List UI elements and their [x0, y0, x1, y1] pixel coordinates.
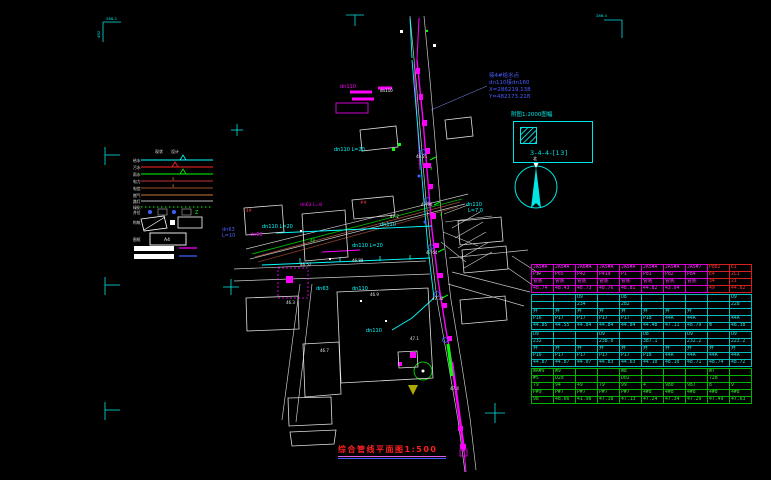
table-cell: 井: [730, 346, 752, 353]
water-main: [417, 18, 419, 60]
building: [288, 397, 332, 426]
table-cell: #5: [532, 376, 554, 383]
table-cell: 井: [620, 309, 642, 316]
table-cell: [708, 316, 730, 323]
detail-box-label: 3-4-4-[13]: [530, 149, 568, 157]
elev-label: 46.52: [300, 262, 312, 267]
table-cell: 4: [642, 383, 664, 390]
frame-label: 286.2: [106, 16, 117, 21]
table-cell: 44A: [686, 316, 708, 323]
table-cell: 井: [620, 346, 642, 353]
road-edge: [246, 194, 468, 249]
table-cell: JA5#A: [642, 265, 664, 272]
table-cell: JA5#7: [686, 265, 708, 272]
table-cell: 井: [598, 346, 620, 353]
fitting: [419, 94, 423, 100]
table-cell: 管底: [554, 279, 576, 286]
legend-symbol: Z: [195, 210, 199, 216]
dot: [385, 320, 387, 322]
table-cell: P18: [642, 316, 664, 323]
table-cell: P17: [620, 353, 642, 360]
table-cell: 井: [642, 346, 664, 353]
dot: [422, 370, 425, 373]
fitting: [410, 352, 416, 358]
table-cell: U8: [642, 332, 664, 339]
table-cell: 98: [532, 397, 554, 404]
table-cell: 980: [664, 383, 686, 390]
elev-label: 4#: [246, 208, 253, 213]
marker: [426, 30, 428, 32]
table-cell: W8: [620, 369, 642, 376]
table-cell: 44.87: [554, 360, 576, 367]
table-cell: [730, 309, 752, 316]
legend-bar: [134, 246, 174, 251]
table-cell: W9: [554, 369, 576, 376]
table-cell: 44.82: [730, 286, 752, 293]
table-cell: 44A: [686, 353, 708, 360]
table-cell: 987: [686, 383, 708, 390]
table-cell: [664, 302, 686, 309]
table-cell: 282: [620, 302, 642, 309]
legend-rect: [178, 217, 202, 228]
table-cell: 48.79: [686, 323, 708, 330]
table-cell: [554, 332, 576, 339]
table-cell: 44.87: [532, 360, 554, 367]
table-cell: 48.76: [598, 286, 620, 293]
table-cell: P882: [708, 265, 730, 272]
coordinate-annotation: 接4#给水点 dn110接dn160 X=286219.138 Y=482173…: [489, 73, 531, 101]
table-cell: 48.38: [730, 323, 752, 330]
table-cell: 728: [708, 376, 730, 383]
table-cell: [598, 376, 620, 383]
table-cell: 47.49: [708, 397, 730, 404]
legend-header: 设计: [171, 148, 179, 154]
table-cell: 44.63: [620, 360, 642, 367]
dot: [424, 221, 427, 224]
building: [460, 296, 507, 324]
table-cell: P17: [598, 316, 620, 323]
table-cell: 49: [708, 286, 730, 293]
table-cell: 44.84: [598, 323, 620, 330]
table-cell: [664, 376, 686, 383]
table-cell: E1: [730, 265, 752, 272]
fitting: [458, 426, 463, 431]
legend-label: 路灯: [133, 199, 141, 204]
hatch-line: [452, 212, 480, 228]
table-cell: 21: [730, 279, 752, 286]
pipe-data-table: JA5#AJA5#AJA6#AJA5#AJA5#AJA5#AJA5#AJA5#7…: [531, 264, 752, 405]
table-cell: 44.55: [554, 323, 576, 330]
pipe-label: L=7.0: [468, 208, 483, 214]
table-cell: 井: [554, 309, 576, 316]
table-cell: m: [708, 323, 730, 330]
table-cell: [664, 332, 686, 339]
table-cell: JA6#A: [576, 265, 598, 272]
table-cell: P81: [642, 272, 664, 279]
table-cell: P42: [576, 272, 598, 279]
table-cell: P17: [576, 316, 598, 323]
table-cell: P17: [554, 316, 576, 323]
elev-label: 46.3: [286, 300, 295, 305]
table-cell: JA5#A: [620, 265, 642, 272]
table-cell: 99: [620, 383, 642, 390]
building: [445, 117, 473, 139]
table-cell: JA5#A: [532, 265, 554, 272]
table-cell: 47.34: [664, 397, 686, 404]
table-cell: [686, 286, 708, 293]
elev-label: 47.64: [426, 250, 438, 255]
marker-triangle: [408, 385, 418, 395]
fitting: [422, 120, 427, 126]
legend-label: 电力: [133, 179, 141, 184]
table-cell: [642, 369, 664, 376]
table-cell: 44.85: [532, 323, 554, 330]
drawing-title: 综合管线平面图1:500: [338, 446, 446, 459]
legend-square: [170, 220, 175, 225]
table-cell: U9: [730, 295, 752, 302]
table-cell: W7: [708, 369, 730, 376]
table-cell: [620, 332, 642, 339]
table-cell: [642, 295, 664, 302]
marker: [392, 148, 395, 151]
table-cell: [532, 302, 554, 309]
table-cell: [598, 369, 620, 376]
table-cell: 4#8: [686, 390, 708, 397]
table-cell: 48.10: [664, 360, 686, 367]
pipe-line-green: [448, 344, 452, 376]
table-cell: 49: [576, 383, 598, 390]
table-cell: 井: [576, 309, 598, 316]
table-cell: 48.74: [532, 286, 554, 293]
table-cell: 44.84: [576, 323, 598, 330]
table-cell: [708, 339, 730, 346]
elev-label: 48.21: [416, 154, 428, 159]
legend-label: 燃气: [133, 193, 141, 198]
table-cell: 管底: [576, 279, 598, 286]
table-cell: P419: [598, 272, 620, 279]
legend-symbol: [148, 210, 152, 214]
table-cell: WA#9: [532, 369, 554, 376]
pipe-table-block: U9U8U9234282228井井井井井井井井P16P17P17P17P17P1…: [531, 294, 752, 330]
cad-canvas[interactable]: 286.2482286.4dn63L=10北dn110 L=20dn110 L=…: [0, 0, 771, 480]
table-cell: [730, 376, 752, 383]
table-cell: JA5#A: [598, 265, 620, 272]
table-cell: P18: [642, 353, 664, 360]
table-cell: 43.04: [664, 286, 686, 293]
table-cell: [708, 332, 730, 339]
elev-label: ##: [360, 200, 367, 205]
table-cell: 4#8: [664, 390, 686, 397]
table-cell: [576, 332, 598, 339]
table-cell: 管底: [686, 279, 708, 286]
table-cell: 44.48: [642, 323, 664, 330]
table-cell: D02: [620, 376, 642, 383]
elev-label: 49: [310, 238, 316, 243]
pipe-line-cyan: [262, 258, 430, 265]
legend-marker: x: [172, 183, 175, 188]
table-cell: 4#8: [642, 390, 664, 397]
table-cell: 48.66: [554, 397, 576, 404]
table-cell: 井: [532, 346, 554, 353]
pipe-label: dn110: [380, 88, 393, 93]
table-cell: [686, 295, 708, 302]
table-cell: P17: [532, 272, 554, 279]
table-cell: 44A: [664, 316, 686, 323]
table-cell: 79: [532, 383, 554, 390]
table-cell: P17: [620, 316, 642, 323]
table-cell: D20: [554, 376, 576, 383]
annotation-line: dn110接dn160: [489, 80, 531, 87]
table-cell: 47.24: [642, 397, 664, 404]
table-cell: P#7: [554, 390, 576, 397]
hatch-line: [464, 252, 492, 268]
fitting: [442, 303, 447, 308]
table-cell: [598, 302, 620, 309]
table-cell: [664, 295, 686, 302]
table-cell: P82: [664, 272, 686, 279]
elev-label: 4: [440, 212, 443, 217]
elev-label: 47.96: [421, 202, 433, 207]
table-cell: 94: [554, 383, 576, 390]
manhole: [443, 338, 448, 343]
legend-a4-label: A4: [164, 237, 170, 243]
table-cell: 228: [730, 302, 752, 309]
table-cell: 48.81: [620, 286, 642, 293]
north-arrow-needle: [531, 167, 541, 208]
dot: [360, 300, 362, 302]
dot: [418, 175, 421, 178]
legend-diagonal: [144, 217, 165, 230]
leader-line: [445, 216, 492, 222]
table-cell: 44A: [730, 353, 752, 360]
table-cell: 2L1: [730, 272, 752, 279]
pipe-label: dn110: [352, 286, 368, 292]
table-cell: [554, 339, 576, 346]
table-cell: 234: [576, 302, 598, 309]
pipe-label: dn110 L=20: [262, 224, 293, 230]
fitting: [434, 243, 439, 248]
table-cell: P17: [576, 353, 598, 360]
building: [352, 196, 395, 219]
fitting: [460, 444, 466, 449]
table-cell: JA5#A: [554, 265, 576, 272]
legend-header: 现状: [155, 148, 163, 154]
table-cell: [708, 302, 730, 309]
table-cell: P16: [532, 316, 554, 323]
leader-line: [443, 232, 478, 246]
table-cell: 8: [708, 383, 730, 390]
frame-label: 482: [96, 30, 101, 38]
dot: [433, 44, 436, 47]
legend-marker: [180, 155, 186, 160]
table-cell: [576, 376, 598, 383]
pipe-label: dn110: [380, 222, 396, 228]
table-cell: 44.82: [642, 286, 664, 293]
annotation-line: Y=482173.218: [489, 94, 531, 101]
water-branch: [322, 250, 360, 252]
table-cell: U8: [620, 295, 642, 302]
table-cell: [664, 339, 686, 346]
table-cell: [686, 376, 708, 383]
table-cell: P17: [554, 353, 576, 360]
pipe-line-cyan: [392, 298, 434, 330]
fitting: [431, 213, 436, 219]
title-underline: [338, 456, 446, 457]
table-cell: 4#8: [730, 390, 752, 397]
table-cell: P#7: [576, 390, 598, 397]
table-cell: P#9: [532, 390, 554, 397]
pipe-table-block: U9U9U8U9U9232238.0387.1232.2223.2井井井井井井井…: [531, 331, 752, 367]
table-cell: P17: [598, 353, 620, 360]
elev-label: 46.9: [370, 292, 379, 297]
table-cell: [554, 295, 576, 302]
table-cell: [598, 295, 620, 302]
table-cell: 48.72: [730, 360, 752, 367]
pipe-table-block: JA5#AJA5#AJA6#AJA5#AJA5#AJA5#AJA5#AJA5#7…: [531, 264, 752, 293]
elev-label: 47.30: [432, 296, 444, 301]
table-cell: 232.2: [686, 339, 708, 346]
table-cell: 48.74: [708, 360, 730, 367]
table-cell: 井: [554, 346, 576, 353]
legend-label: 构筑: [133, 220, 141, 225]
hatch-swatch: [520, 127, 537, 144]
plan-drawing: 286.2482286.4dn63L=10北dn110 L=20dn110 L=…: [0, 0, 771, 480]
elev-label: 47.1: [410, 336, 419, 341]
elev-label: 47.2: [390, 214, 399, 219]
table-cell: 井: [686, 309, 708, 316]
table-cell: 井: [686, 346, 708, 353]
table-cell: 48.71: [686, 360, 708, 367]
table-cell: JA5#A: [664, 265, 686, 272]
table-cell: 47.11: [664, 323, 686, 330]
table-cell: 47.63: [730, 397, 752, 404]
table-cell: 井: [642, 309, 664, 316]
dot: [300, 230, 302, 232]
table-cell: P#7: [620, 390, 642, 397]
table-cell: 232: [532, 339, 554, 346]
table-cell: P1: [620, 272, 642, 279]
water-main: [452, 362, 464, 450]
elev-label: 4: [430, 166, 433, 171]
table-cell: 44.83: [598, 360, 620, 367]
annotation-line: X=286219.138: [489, 87, 531, 94]
table-cell: [620, 339, 642, 346]
pipe-label: dn63 L=8: [300, 202, 322, 208]
table-cell: 井: [576, 346, 598, 353]
tick: [438, 249, 444, 252]
pipe-label: dn110: [366, 328, 382, 334]
table-cell: E4: [708, 272, 730, 279]
table-cell: U9: [686, 332, 708, 339]
table-cell: 9: [730, 383, 752, 390]
legend-label: 雨水: [133, 172, 141, 177]
table-cell: 管底: [664, 279, 686, 286]
table-cell: P#7: [598, 390, 620, 397]
table-cell: 41.98: [576, 397, 598, 404]
table-cell: 44.07: [576, 360, 598, 367]
table-cell: P65: [554, 272, 576, 279]
legend-symbol: [182, 209, 191, 215]
pipe-label: L=10: [222, 233, 235, 239]
fitting: [428, 184, 433, 189]
legend-marker: [172, 162, 178, 167]
dot: [329, 258, 331, 260]
pipe-label: dn110: [340, 84, 356, 90]
legend-label: 电信: [133, 186, 141, 191]
table-cell: 井: [598, 309, 620, 316]
building: [290, 430, 336, 446]
table-cell: 井: [708, 346, 730, 353]
table-cell: 387.1: [642, 339, 664, 346]
legend-label: 井位: [133, 210, 141, 215]
table-cell: 井: [664, 346, 686, 353]
hatch-line: [455, 222, 483, 238]
legend-marker: x: [172, 176, 175, 181]
fitting: [438, 273, 443, 278]
table-cell: 44.10: [642, 360, 664, 367]
elev-label: 46.7: [320, 348, 329, 353]
table-cell: 4#8: [708, 390, 730, 397]
table-cell: [642, 376, 664, 383]
table-cell: [576, 339, 598, 346]
table-cell: 47.29: [686, 397, 708, 404]
legend-symbol: [158, 209, 167, 215]
table-cell: [554, 302, 576, 309]
table-cell: 44A: [730, 316, 752, 323]
table-cell: 井: [532, 309, 554, 316]
title-underline: [338, 458, 446, 459]
legend-symbol: [172, 210, 176, 214]
dot: [400, 30, 403, 33]
table-cell: U9: [730, 332, 752, 339]
table-cell: [686, 302, 708, 309]
table-cell: 48.73: [576, 286, 598, 293]
legend-label: 图框: [133, 237, 141, 242]
pipe-label: dn63: [250, 232, 263, 238]
table-cell: 管底: [642, 279, 664, 286]
table-cell: 管底: [532, 279, 554, 286]
table-cell: 47.38: [598, 397, 620, 404]
table-cell: [642, 302, 664, 309]
leader-line: [431, 86, 487, 110]
tick: [430, 157, 436, 160]
table-cell: P16: [532, 353, 554, 360]
elev-label: 46.88: [352, 258, 364, 263]
table-cell: U9: [598, 332, 620, 339]
legend-label: 污水: [133, 165, 141, 170]
marker: [398, 143, 401, 146]
pipe-label: dn110 L=20: [352, 243, 383, 249]
pipe-label: dn63: [316, 286, 329, 292]
table-cell: 79: [598, 383, 620, 390]
table-cell: P84: [686, 272, 708, 279]
elev-label: 47.4: [450, 386, 459, 391]
table-cell: 44.84: [620, 323, 642, 330]
table-cell: [708, 309, 730, 316]
table-cell: 238.0: [598, 339, 620, 346]
hydrant: [286, 276, 293, 283]
detail-box-caption: 附图1:2000图幅: [511, 110, 552, 118]
table-cell: 47.13: [620, 397, 642, 404]
table-cell: 48.43: [554, 286, 576, 293]
table-cell: [708, 295, 730, 302]
road-edge: [234, 274, 430, 281]
table-cell: 管底: [598, 279, 620, 286]
hatch-box: [336, 103, 368, 113]
legend-label: 给水: [133, 158, 141, 163]
table-cell: [730, 369, 752, 376]
building: [462, 246, 508, 273]
